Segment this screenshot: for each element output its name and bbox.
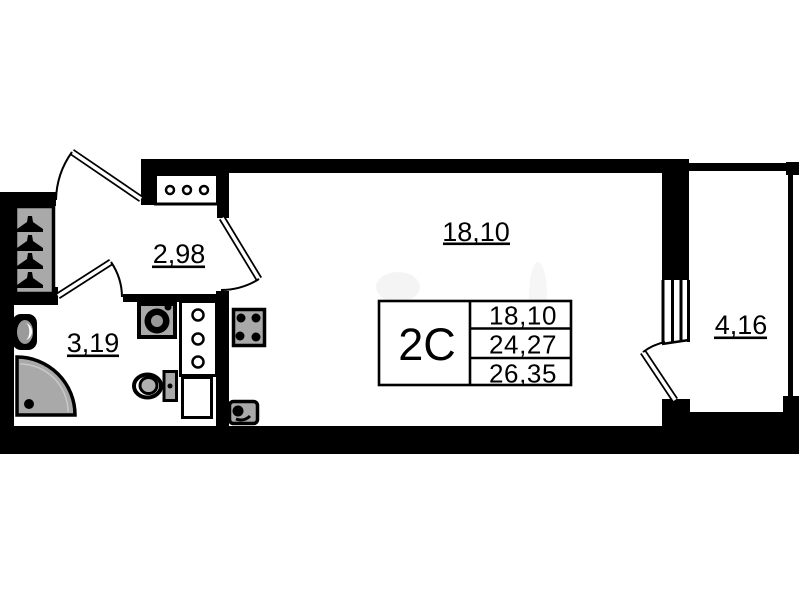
svg-text:18,10: 18,10 [489,301,557,331]
svg-text:26,35: 26,35 [489,359,557,389]
svg-text:3,19: 3,19 [67,328,120,358]
svg-text:24,27: 24,27 [489,330,557,360]
svg-text:4,16: 4,16 [715,310,768,340]
svg-text:2,98: 2,98 [153,239,206,269]
svg-text:2C: 2C [398,319,456,370]
